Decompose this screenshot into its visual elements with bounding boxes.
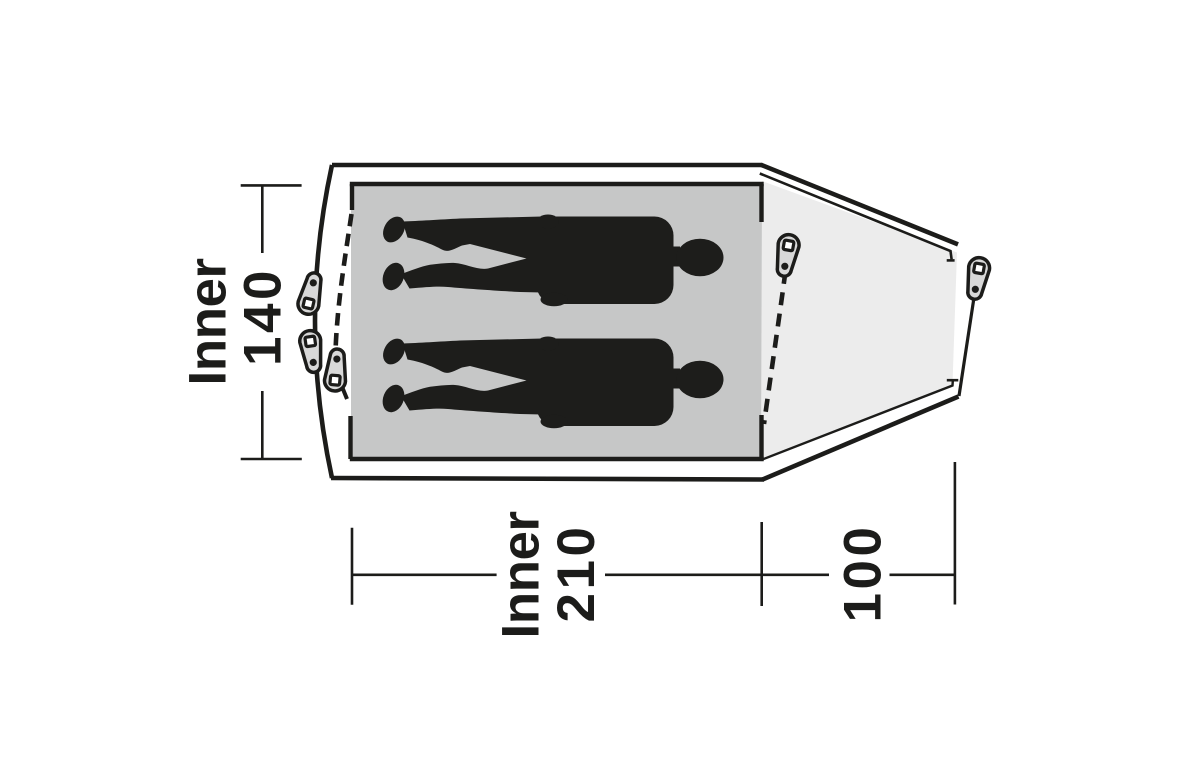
svg-text:Inner: Inner — [492, 511, 551, 638]
svg-text:210: 210 — [547, 524, 606, 623]
svg-text:140: 140 — [234, 267, 293, 366]
svg-text:100: 100 — [834, 524, 893, 623]
svg-text:Inner: Inner — [179, 258, 238, 385]
